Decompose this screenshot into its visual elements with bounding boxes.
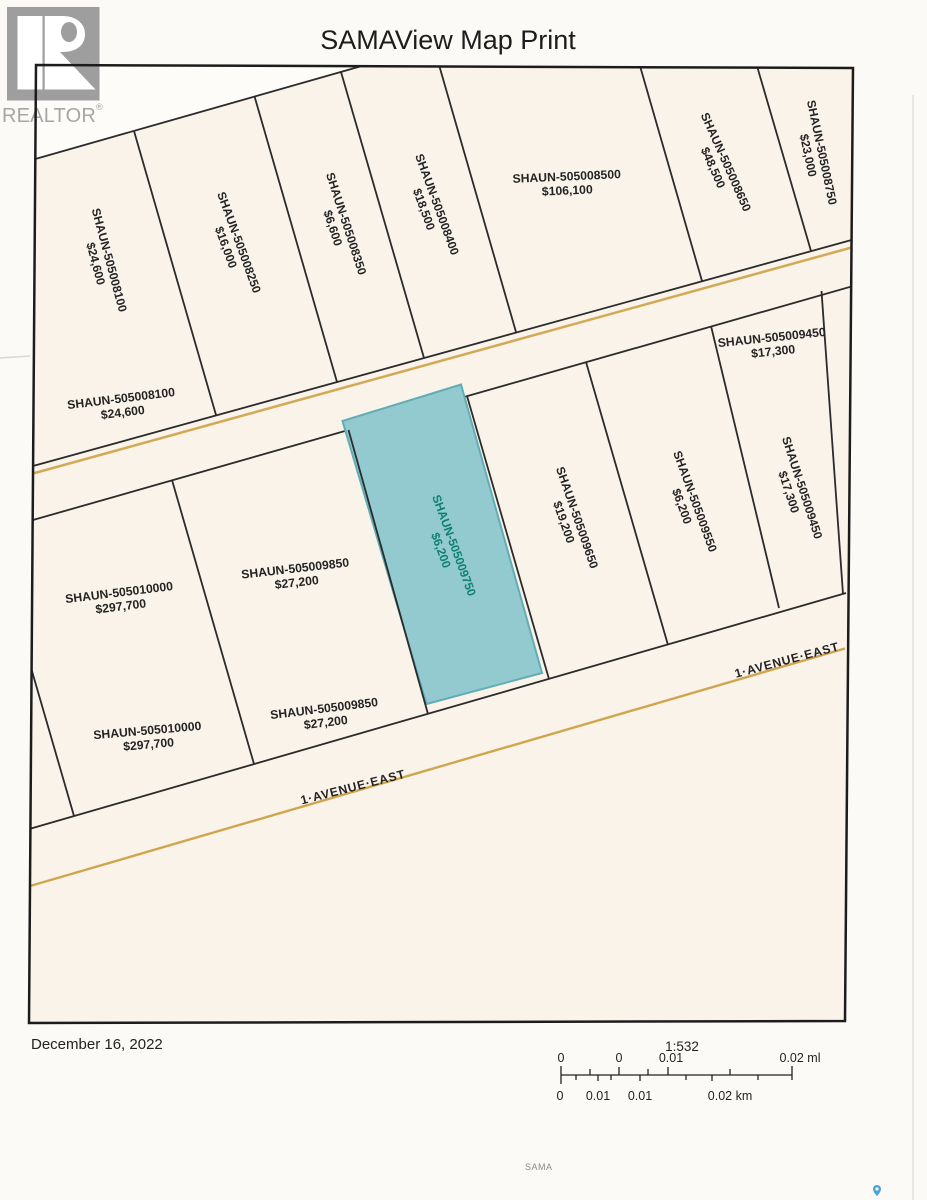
svg-text:SAMAView Map Print: SAMAView Map Print [320,25,576,55]
svg-text:0: 0 [616,1051,623,1065]
svg-text:0.02 ml: 0.02 ml [780,1051,821,1065]
svg-text:SAMA: SAMA [525,1162,553,1172]
svg-text:®: ® [96,102,103,112]
svg-text:REALTOR: REALTOR [2,105,96,127]
svg-text:0: 0 [558,1051,565,1065]
svg-text:December 16, 2022: December 16, 2022 [31,1036,163,1053]
svg-text:$106,100: $106,100 [542,182,594,198]
svg-text:0.01: 0.01 [628,1089,652,1103]
svg-text:0.01: 0.01 [586,1089,610,1103]
svg-text:0: 0 [557,1089,564,1103]
svg-text:0.01: 0.01 [659,1051,683,1065]
svg-text:0.02 km: 0.02 km [708,1089,752,1103]
